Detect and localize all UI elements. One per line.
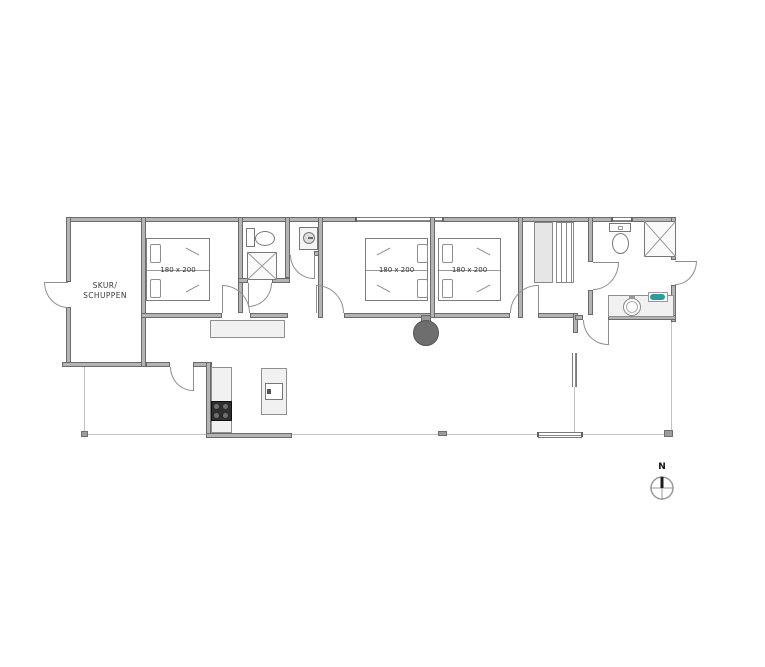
wall-bed2-bed3	[430, 217, 435, 318]
wall-bedrooms-south-4	[538, 313, 575, 318]
door-swing-shed	[44, 282, 68, 308]
door-swing-living	[583, 320, 608, 345]
wall-north-1	[66, 217, 356, 222]
washer-handle	[308, 237, 313, 239]
terrace-edge-mid	[574, 387, 575, 434]
bed-3: 180 x 200	[438, 238, 501, 301]
compass-north-icon	[643, 472, 681, 504]
sink-accent	[650, 294, 665, 300]
bed-size-label: 180 x 200	[147, 239, 209, 300]
door-leaf	[538, 285, 539, 313]
wall-living-nw-1	[146, 362, 170, 367]
window-north-bathroom	[612, 217, 632, 222]
wardrobe	[534, 222, 553, 283]
door-leaf	[314, 255, 315, 279]
door-leaf	[608, 320, 609, 345]
door-swing-utility	[290, 255, 314, 279]
wall-bath-utility	[285, 217, 290, 278]
wall-west-2	[66, 307, 71, 367]
terrace-edge-east	[671, 322, 672, 435]
door-leaf	[193, 367, 194, 391]
wall-bedrooms-south-1	[141, 313, 222, 318]
bed-2: 180 x 200	[365, 238, 428, 301]
kitchen-faucet	[267, 389, 271, 394]
wood-stove	[413, 320, 439, 346]
kitchen-island	[261, 368, 287, 415]
terrace-post	[81, 431, 88, 437]
wall-west-1	[66, 217, 71, 282]
terrace-post	[664, 430, 673, 437]
terrace-edge-south-1	[84, 434, 206, 435]
washbasin-inner	[626, 301, 638, 313]
wall-hall-bath2-2	[588, 290, 593, 315]
door-swing-bathroom1	[248, 283, 272, 307]
wall-bath2-south-1	[575, 315, 583, 320]
wall-north-2	[443, 217, 612, 222]
bed-1: 180 x 200	[146, 238, 210, 301]
cistern-button	[618, 226, 623, 230]
washing-machine	[299, 227, 318, 250]
shed-label-line1: SKUR/	[93, 281, 118, 291]
door-swing-hall	[510, 285, 538, 313]
wall-hall-bath2-1	[588, 217, 593, 262]
door-swing-east-entrance	[675, 261, 697, 285]
terrace-edge-south-3	[582, 434, 671, 435]
bed-size-label: 180 x 200	[366, 239, 427, 300]
bed-size-label: 180 x 200	[439, 239, 500, 300]
shed-label: SKUR/ SCHUPPEN	[70, 278, 140, 304]
door-swing-main-entrance	[170, 367, 193, 391]
faucet	[629, 295, 635, 299]
terrace-edge-west	[84, 367, 85, 434]
door-swing-bathroom2	[593, 262, 619, 290]
toilet-cistern	[609, 223, 631, 232]
door-swing-bedroom1	[222, 285, 250, 313]
compass-north-label: N	[643, 462, 681, 472]
toilet-bowl	[612, 233, 629, 254]
compass: N	[643, 462, 681, 506]
toilet-cistern	[246, 228, 255, 247]
kitchen-counter	[211, 367, 232, 433]
terrace-edge-south-2	[292, 434, 538, 435]
shower-icon	[644, 221, 676, 257]
window-south	[538, 432, 582, 438]
door-swing-bedroom2	[316, 285, 344, 313]
toilet-bowl	[255, 231, 275, 246]
wall-shed-south	[62, 362, 146, 367]
shed-label-line2: SCHUPPEN	[83, 291, 127, 301]
window-dining	[572, 353, 577, 387]
sideboard	[210, 320, 285, 338]
shower-icon	[247, 252, 277, 280]
wall-kitchen-south	[206, 433, 292, 438]
terrace-post	[438, 431, 447, 436]
floor-plan: SKUR/ SCHUPPEN 180 x 200 180 x 200 180 x…	[0, 0, 765, 667]
closet-sliding-doors	[556, 222, 574, 283]
wall-bedrooms-south-2	[250, 313, 288, 318]
cooktop	[211, 401, 232, 421]
